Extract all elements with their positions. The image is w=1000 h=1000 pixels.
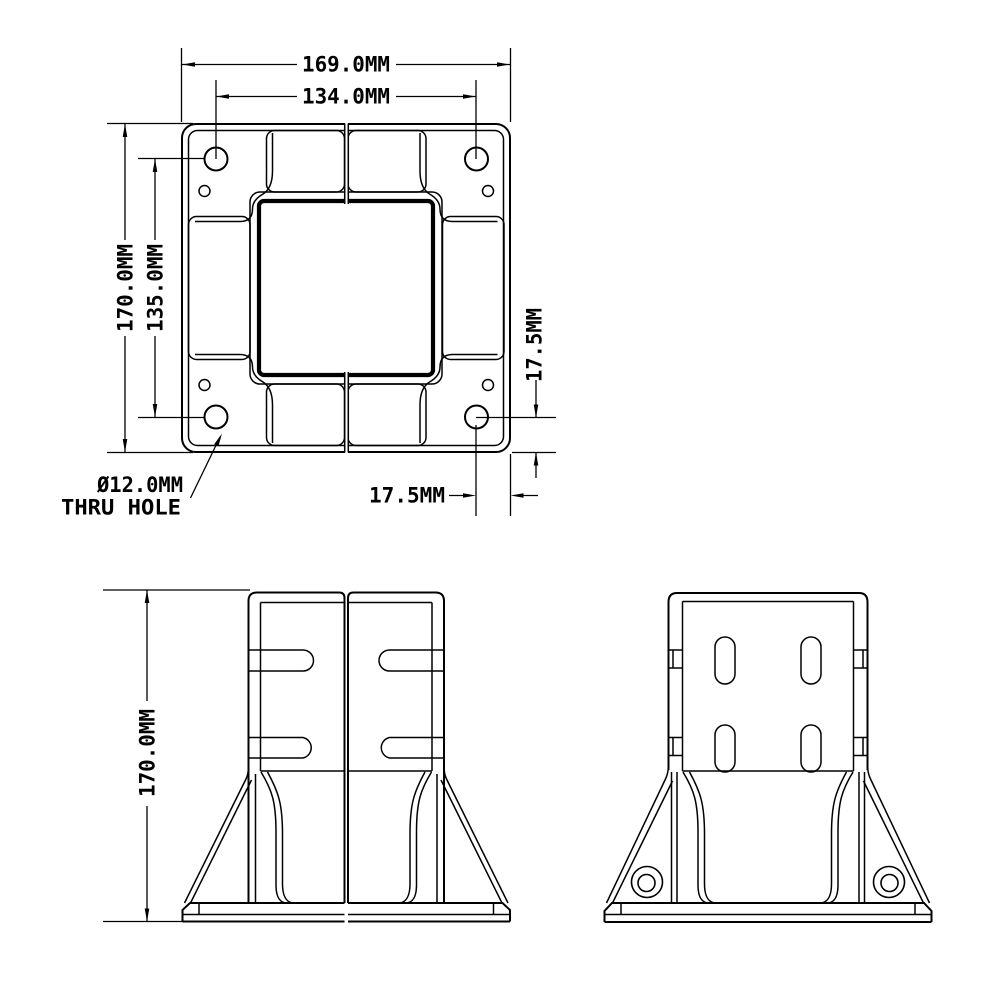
dim-hole-spacing-vertical: 135.0MM: [138, 159, 205, 418]
gusset-edge: [191, 780, 252, 903]
dim-front-overall-height-label: 170.0MM: [136, 709, 160, 797]
side-view-half-mirror: [768, 593, 932, 922]
corner-pad-mirror-right: [348, 131, 498, 222]
thru-hole-callout: Ø12.0MM THRU HOLE: [61, 434, 222, 520]
vertical-slot: [715, 637, 735, 684]
drawing-canvas: 169.0MM 134.0MM 170.0MM 135.0MM 17.5MM: [0, 0, 1000, 1000]
thru-hole-callout-type: THRU HOLE: [61, 496, 181, 520]
side-view: [605, 593, 932, 922]
engineering-drawing: 169.0MM 134.0MM 170.0MM 135.0MM 17.5MM: [0, 0, 1000, 1000]
tube-slot: [249, 738, 312, 759]
front-view-half: [183, 593, 345, 922]
tube-outer-outline: [250, 192, 442, 384]
side-rib-mirror: [443, 217, 505, 360]
side-view-half: [605, 593, 769, 922]
front-view: 170.0MM: [103, 590, 510, 922]
base-plate: [183, 903, 345, 922]
corner-pad-mirror-bottom: [195, 355, 345, 446]
corner-pad-mirror-diagonal: [348, 355, 498, 446]
dim-overall-width-label: 169.0MM: [302, 53, 390, 77]
small-hole: [199, 186, 210, 197]
front-view-half-mirror: [348, 593, 510, 922]
tube-bore-outline: [259, 201, 433, 375]
dim-front-overall-height: 170.0MM: [103, 590, 250, 922]
corner-pad: [195, 131, 345, 222]
dim-hole-spacing-vertical-label: 135.0MM: [144, 244, 168, 332]
dim-hole-edge-offset-bottom: 17.5MM: [369, 425, 538, 516]
dim-hole-edge-offset-right-label: 17.5MM: [523, 308, 547, 382]
base-hole: [638, 875, 655, 892]
top-view: 169.0MM 134.0MM 170.0MM 135.0MM 17.5MM: [61, 48, 556, 520]
side-rib: [189, 217, 251, 360]
dim-hole-spacing-horizontal-label: 134.0MM: [302, 85, 390, 109]
dim-hole-edge-offset-bottom-label: 17.5MM: [369, 484, 445, 508]
gusset-edge: [185, 766, 249, 903]
dim-overall-height-label: 170.0MM: [114, 244, 138, 332]
edge-notch: [669, 738, 683, 756]
tube-slot: [249, 650, 314, 671]
base-plate: [605, 903, 769, 922]
top-view-body: [182, 119, 510, 457]
thru-hole-callout-diameter: Ø12.0MM: [96, 473, 183, 497]
edge-notch: [669, 650, 683, 668]
vertical-slot: [715, 725, 735, 772]
